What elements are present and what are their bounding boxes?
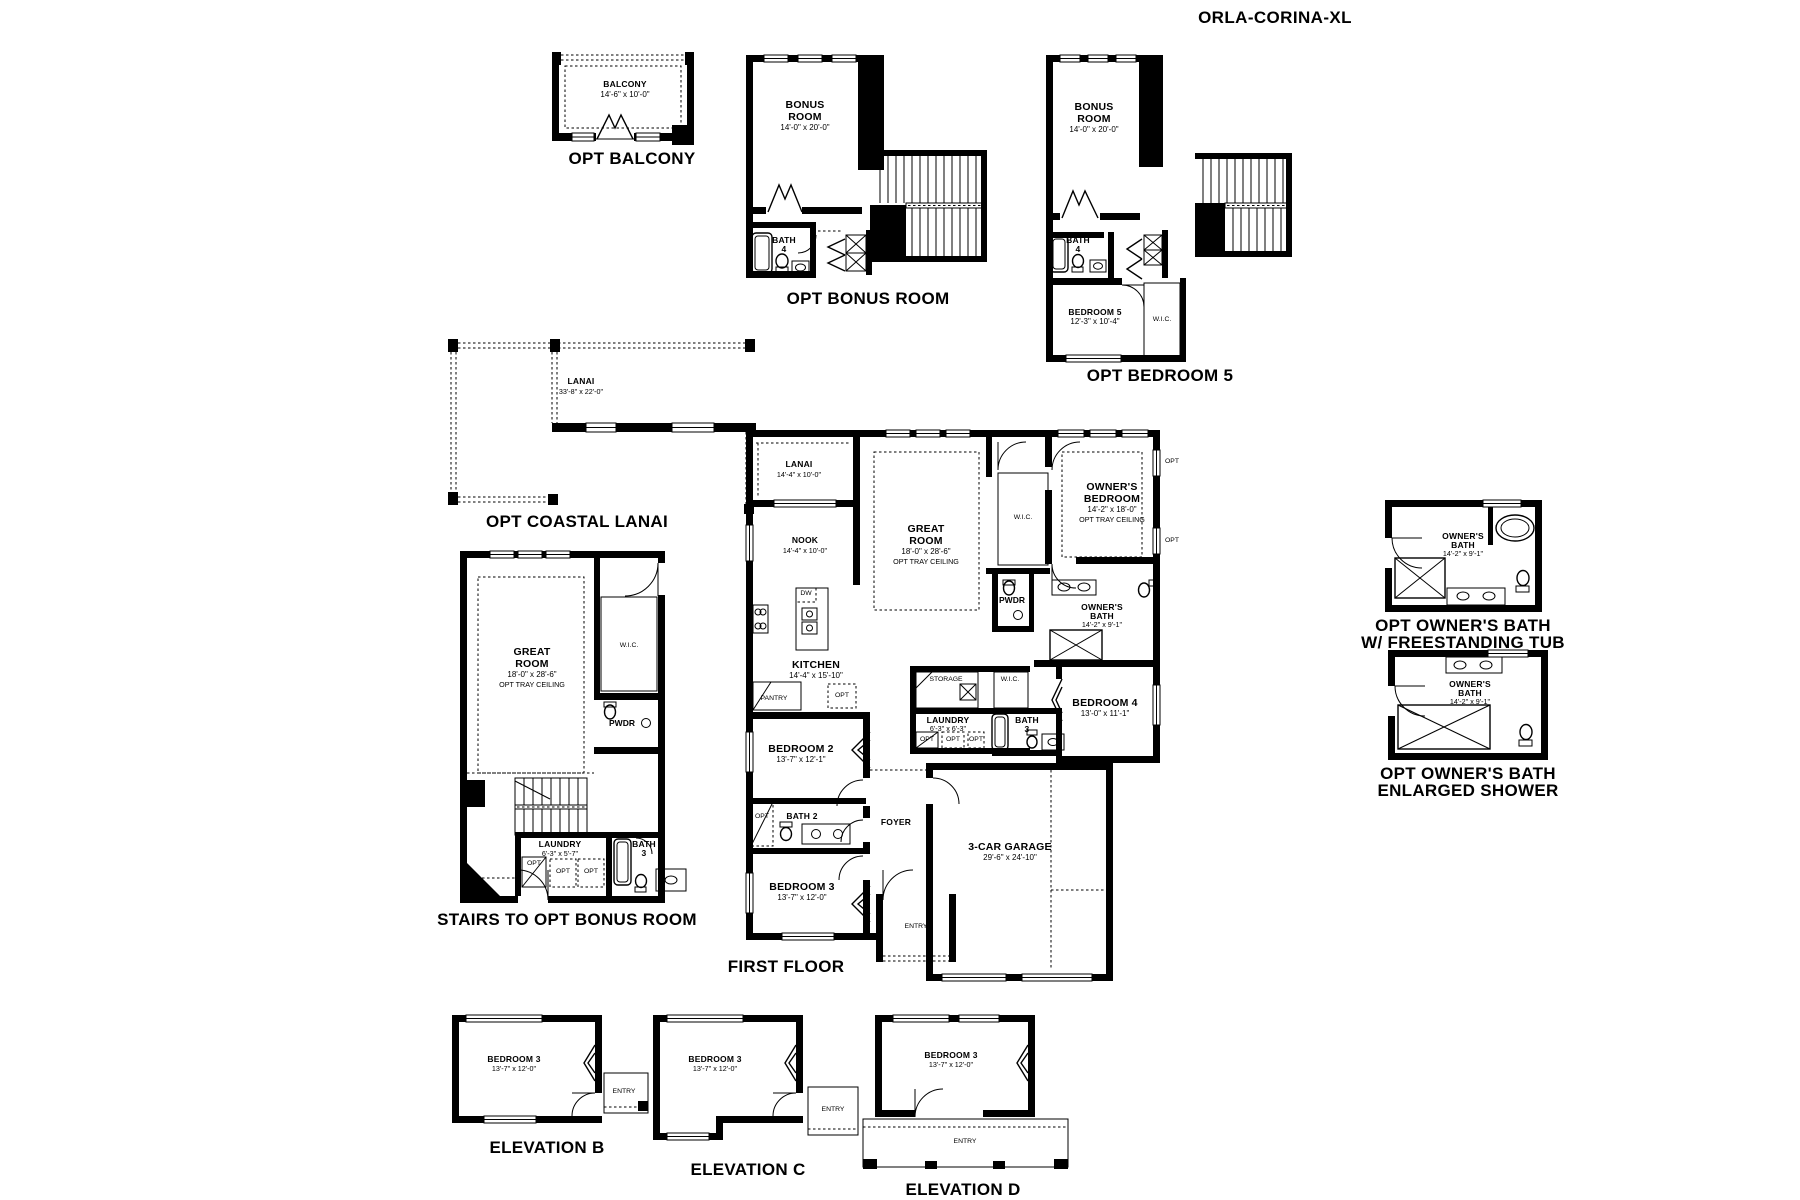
room-dims-bedroom3-c: 13'-7" x 12'-0"	[693, 1065, 737, 1072]
room-label-bedroom2: BEDROOM 2	[768, 744, 833, 755]
room-dims-bedroom5: 12'-3" x 10'-4"	[1070, 318, 1119, 326]
elevation-c-drawing	[653, 1015, 868, 1180]
room-label-nook: NOOK	[792, 536, 818, 545]
room-label-wic-bed5: W.I.C.	[1153, 317, 1172, 324]
room-label-bonus5-2: ROOM	[1077, 114, 1110, 125]
room-label-pantry: PANTRY	[761, 696, 788, 703]
room-label-bonus5-1: BONUS	[1075, 102, 1114, 113]
room-label-garage: 3-CAR GARAGE	[968, 842, 1052, 853]
caption-stairs-to-bonus: STAIRS TO OPT BONUS ROOM	[437, 911, 697, 928]
room-label-bedroom5: BEDROOM 5	[1068, 308, 1121, 317]
plan-elevation-b: BEDROOM 3 13'-7" x 12'-0" ENTRY ELEVATIO…	[452, 1015, 657, 1160]
room-label-pwdr: PWDR	[999, 596, 1025, 605]
opt-label-laundry1: OPT	[920, 737, 934, 744]
room-label-bedroom3: BEDROOM 3	[769, 882, 834, 893]
room-dims-nook: 14'-4" x 10'-0"	[783, 547, 827, 554]
plan-elevation-c: BEDROOM 3 13'-7" x 12'-0" ENTRY ELEVATIO…	[653, 1015, 868, 1180]
opt-label-window2: OPT	[1165, 538, 1179, 545]
room-label-coastal-lanai: LANAI	[568, 377, 595, 386]
room-label-great-s1: GREAT	[514, 647, 551, 658]
caption-opt-bath-shower-2: ENLARGED SHOWER	[1377, 782, 1558, 799]
room-label-entry-b: ENTRY	[613, 1089, 636, 1096]
plan-elevation-d: BEDROOM 3 13'-7" x 12'-0" ENTRY ELEVATIO…	[863, 1015, 1083, 1200]
caption-opt-bath-shower-1: OPT OWNER'S BATH	[1380, 765, 1556, 782]
room-label-bedroom3-b: BEDROOM 3	[487, 1055, 540, 1064]
room-dims-garage: 29'-6" x 24'-10"	[983, 854, 1037, 862]
caption-opt-bath-tub-1: OPT OWNER'S BATH	[1375, 617, 1551, 634]
room-dims-coastal-lanai: 33'-8" x 22'-0"	[559, 388, 603, 395]
room-label-bonus-2: ROOM	[788, 112, 821, 123]
room-dims-obath-opt2: 14'-2" x 9'-1"	[1450, 698, 1490, 705]
plan-opt-bedroom5: BONUS ROOM 14'-0" x 20'-0" BATH 4 BEDROO…	[1046, 55, 1306, 390]
room-label-great-2: ROOM	[909, 536, 942, 547]
room-dims-obed: 14'-2" x 18'-0"	[1087, 506, 1136, 514]
opt-label-kitchen: OPT	[835, 693, 849, 700]
room-label-bedroom3-d: BEDROOM 3	[924, 1051, 977, 1060]
opt-label-bath2: OPT	[755, 814, 769, 821]
caption-opt-coastal-lanai: OPT COASTAL LANAI	[486, 513, 668, 530]
room-dims-obath: 14'-2" x 9'-1"	[1082, 621, 1122, 628]
room-label-obed-2: BEDROOM	[1084, 494, 1140, 505]
room-dims-great: 18'-0" x 28'-6"	[901, 548, 950, 556]
room-label-wic-s: W.I.C.	[620, 643, 639, 650]
caption-first-floor: FIRST FLOOR	[728, 958, 845, 975]
plan-stairs-to-bonus: GREAT ROOM 18'-0" x 28'-6" OPT TRAY CEIL…	[460, 551, 730, 931]
room-label-obed-1: OWNER'S	[1086, 482, 1137, 493]
room-label-bedroom4: BEDROOM 4	[1072, 698, 1137, 709]
caption-opt-bonus-room: OPT BONUS ROOM	[787, 290, 950, 307]
room-label-lanai: LANAI	[786, 460, 813, 469]
room-label-bedroom3-c: BEDROOM 3	[688, 1055, 741, 1064]
room-label-bath4-2: 4	[782, 245, 787, 254]
label-dw: DW	[800, 591, 811, 598]
room-dims-laundry: 6'-3" x 6'-3"	[930, 725, 966, 732]
room-label-bath3-2: 3	[1025, 725, 1030, 734]
room-opt-obed: OPT TRAY CEILING	[1079, 516, 1145, 523]
caption-opt-balcony: OPT BALCONY	[568, 150, 695, 167]
room-dims-balcony: 14'-6" x 10'-0"	[600, 91, 649, 99]
room-dims-great-s: 18'-0" x 28'-6"	[507, 671, 556, 679]
room-label-storage: STORAGE	[929, 677, 962, 684]
opt-label-2: OPT	[556, 869, 570, 876]
caption-opt-bedroom5: OPT BEDROOM 5	[1087, 367, 1234, 384]
floorplan-sheet: ORLA-CORINA-XL BALCONY 14'-6" x 10'-0" O…	[0, 0, 1800, 1200]
room-label-great-1: GREAT	[908, 524, 945, 535]
plan-opt-balcony: BALCONY 14'-6" x 10'-0" OPT BALCONY	[552, 50, 702, 175]
room-dims-bonus: 14'-0" x 20'-0"	[780, 124, 829, 132]
room-dims-lanai: 14'-4" x 10'-0"	[777, 471, 821, 478]
room-dims-laundry-s: 6'-3" x 5'-7"	[542, 850, 578, 857]
opt-bonus-room-drawing	[746, 55, 996, 310]
room-dims-bedroom4: 13'-0" x 11'-1"	[1081, 710, 1130, 718]
room-dims-bedroom3: 13'-7" x 12'-0"	[777, 894, 826, 902]
sheet-title: ORLA-CORINA-XL	[1198, 8, 1352, 28]
room-label-bath3s-2: 3	[642, 849, 647, 858]
room-dims-bedroom3-b: 13'-7" x 12'-0"	[492, 1065, 536, 1072]
room-label-entry: ENTRY	[905, 924, 928, 931]
room-label-bath2: BATH 2	[786, 812, 817, 821]
room-label-entry-c: ENTRY	[822, 1107, 845, 1114]
plan-opt-bath-shower: OWNER'S BATH 14'-2" x 9'-1" OPT OWNER'S …	[1388, 650, 1558, 805]
plan-opt-bonus-room: BONUS ROOM 14'-0" x 20'-0" BATH 4 OPT BO…	[746, 55, 996, 310]
room-label-foyer: FOYER	[881, 818, 911, 827]
opt-label-3: OPT	[584, 869, 598, 876]
caption-elevation-b: ELEVATION B	[489, 1139, 604, 1156]
room-dims-kitchen: 14'-4" x 15'-10"	[789, 672, 843, 680]
opt-label-laundry3: OPT	[969, 737, 983, 744]
room-dims-bonus5: 14'-0" x 20'-0"	[1069, 126, 1118, 134]
plan-opt-coastal-lanai: LANAI 33'-8" x 22'-0" OPT COASTAL LANAI	[448, 339, 763, 534]
room-label-wic-owners: W.I.C.	[1014, 515, 1033, 522]
caption-opt-bath-tub-2: W/ FREESTANDING TUB	[1361, 634, 1565, 651]
caption-elevation-c: ELEVATION C	[690, 1161, 805, 1178]
room-label-balcony: BALCONY	[603, 80, 646, 89]
opt-label-window1: OPT	[1165, 459, 1179, 466]
room-dims-bedroom2: 13'-7" x 12'-1"	[776, 756, 825, 764]
room-label-kitchen: KITCHEN	[792, 660, 840, 671]
room-label-bonus-1: BONUS	[786, 100, 825, 111]
room-label-wic2: W.I.C.	[1001, 677, 1020, 684]
opt-label-1: OPT	[527, 861, 541, 868]
room-dims-bedroom3-d: 13'-7" x 12'-0"	[929, 1061, 973, 1068]
opt-coastal-lanai-drawing	[448, 339, 763, 534]
room-opt-great: OPT TRAY CEILING	[893, 558, 959, 565]
room-dims-obath-opt1: 14'-2" x 9'-1"	[1443, 550, 1483, 557]
room-label-laundry-s: LAUNDRY	[539, 840, 582, 849]
room-label-great-s2: ROOM	[515, 659, 548, 670]
caption-elevation-d: ELEVATION D	[905, 1181, 1020, 1198]
opt-label-laundry2: OPT	[946, 737, 960, 744]
plan-opt-bath-tub: OWNER'S BATH 14'-2" x 9'-1" OPT OWNER'S …	[1385, 500, 1555, 655]
plan-first-floor: LANAI 14'-4" x 10'-0" NOOK 14'-4" x 10'-…	[746, 430, 1191, 995]
room-opt-great-s: OPT TRAY CEILING	[499, 681, 565, 688]
elevation-d-drawing	[863, 1015, 1083, 1200]
room-label-bath4b-2: 4	[1076, 245, 1081, 254]
room-label-pwdr-s: PWDR	[609, 719, 635, 728]
room-label-entry-d: ENTRY	[954, 1139, 977, 1146]
